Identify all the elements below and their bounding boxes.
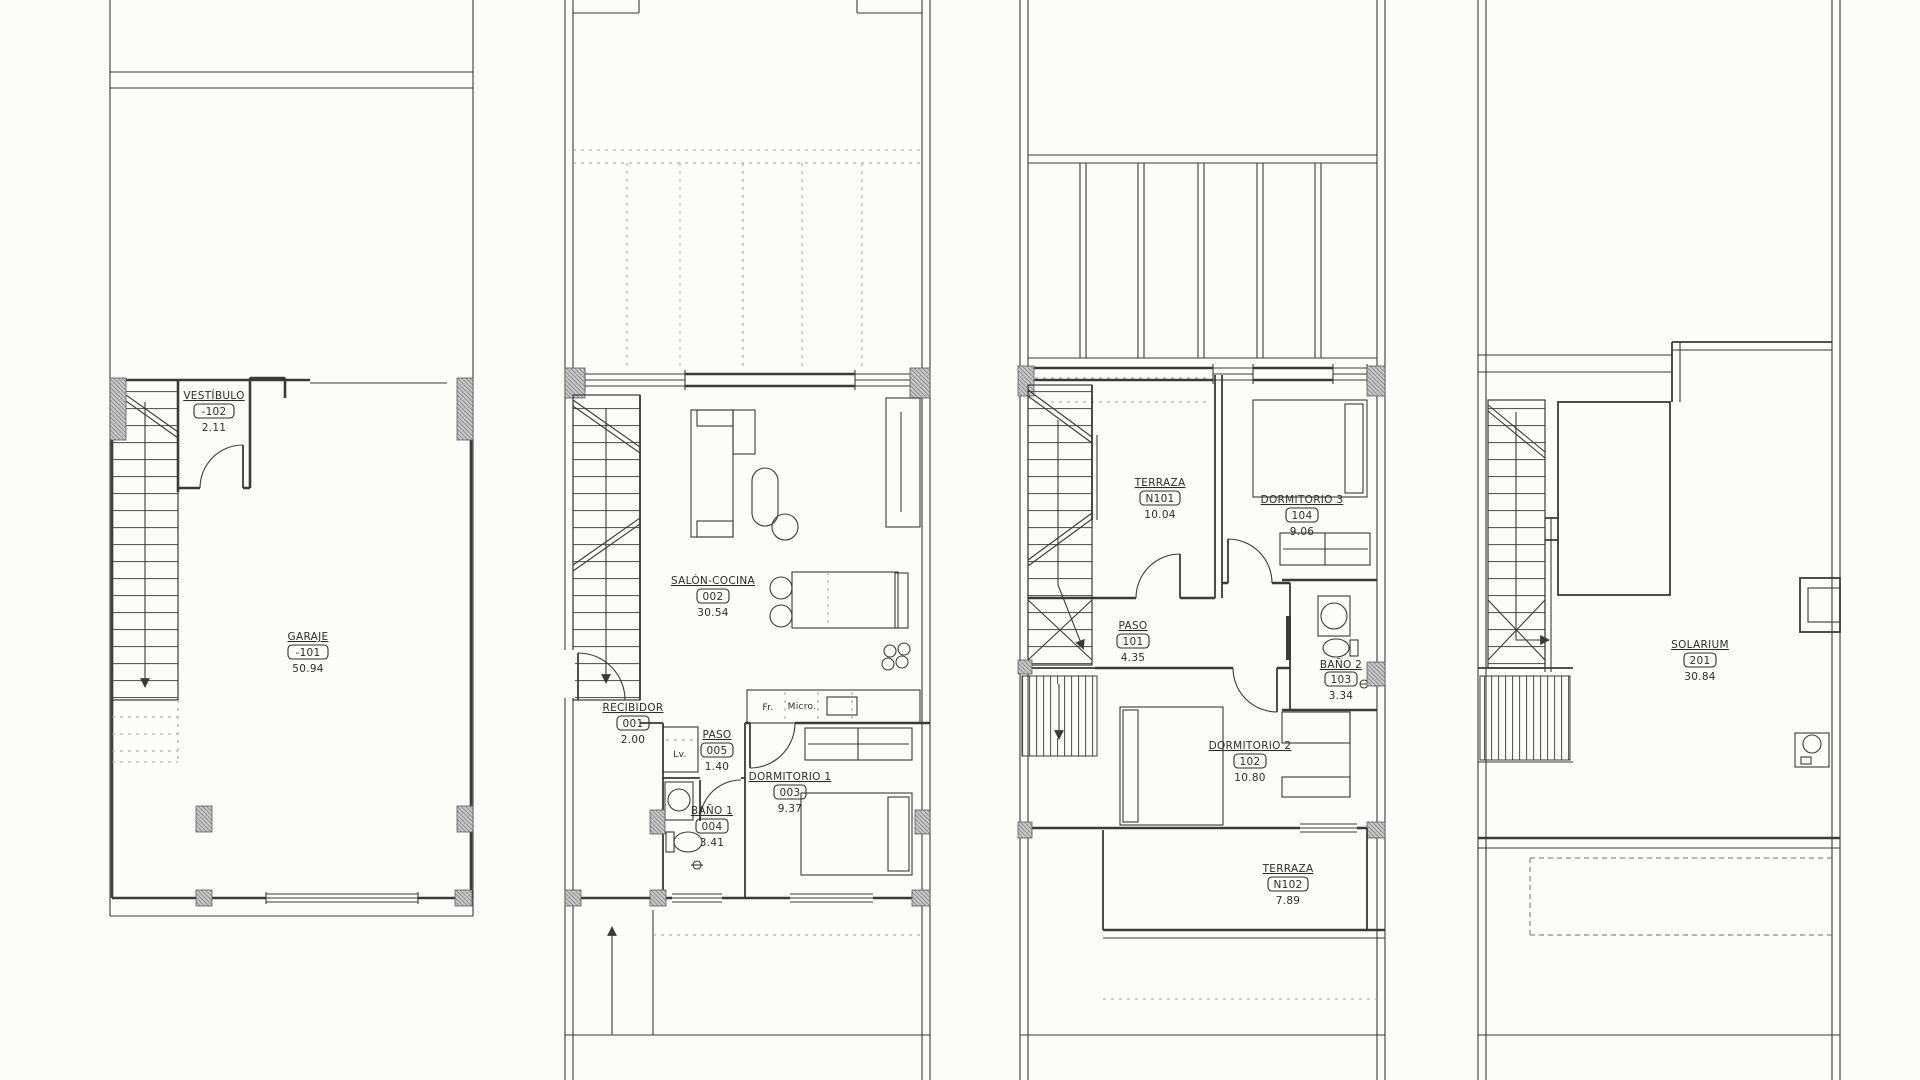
- room-label-recibidor: RECIBIDOR 001 2.00: [602, 702, 663, 746]
- room-label-dormitorio-2: DORMITORIO 2 102 10.80: [1209, 740, 1292, 784]
- room-name: VESTÍBULO: [183, 389, 244, 402]
- room-code: 002: [703, 591, 724, 603]
- bathroom-fixtures: [665, 782, 703, 869]
- room-name: TERRAZA: [1134, 477, 1186, 489]
- room-area: 10.04: [1144, 509, 1176, 521]
- bed: [1120, 707, 1223, 825]
- wardrobe: [805, 728, 912, 760]
- plan-basement-garage: VESTÍBULO -102 2.11 GARAJE -101 50.94: [110, 0, 473, 916]
- room-name: TERRAZA: [1262, 863, 1314, 875]
- room-name: DORMITORIO 2: [1209, 740, 1292, 752]
- room-code: N102: [1273, 879, 1302, 891]
- room-area: 1.40: [705, 761, 730, 773]
- room-name: PASO: [1119, 620, 1148, 632]
- washbasin: [1318, 596, 1350, 636]
- staircase-down: [573, 395, 640, 700]
- room-code: 001: [623, 718, 644, 730]
- room-code: 101: [1123, 636, 1144, 648]
- room-label-paso: PASO 005 1.40: [701, 729, 733, 773]
- washbasin: [665, 782, 693, 820]
- bed: [1253, 400, 1367, 497]
- room-name: GARAJE: [288, 631, 329, 643]
- room-code: 005: [707, 745, 728, 757]
- door-arc: [750, 723, 795, 768]
- door-leaf: [1286, 616, 1291, 660]
- rear-terrace: [1103, 828, 1385, 999]
- toilet: [674, 832, 702, 852]
- room-code: 003: [780, 787, 801, 799]
- room-area: 3.34: [1329, 690, 1354, 702]
- garage-column: [196, 806, 212, 832]
- room-area: 3.41: [700, 837, 725, 849]
- kitchen-counter: [882, 398, 920, 670]
- room-label-solarium: SOLARIUM 201 30.84: [1671, 639, 1729, 683]
- room-area: 9.37: [778, 803, 803, 815]
- window: [1800, 578, 1840, 632]
- bbq-unit: [1795, 733, 1829, 767]
- room-area: 2.11: [202, 422, 227, 434]
- room-code: N101: [1145, 493, 1174, 505]
- room-code: 103: [1331, 674, 1352, 686]
- room-code: -102: [201, 406, 226, 418]
- toilet: [1323, 639, 1349, 657]
- room-label-salon-cocina: SALÓN-COCINA 002 30.54: [671, 574, 756, 619]
- staircase-up: [1488, 400, 1551, 672]
- room-code: 104: [1292, 510, 1313, 522]
- room-area: 7.89: [1276, 895, 1301, 907]
- appliance-label-fridge: Fr.: [762, 703, 773, 713]
- room-code: -101: [295, 647, 320, 659]
- room-area: 4.35: [1121, 652, 1146, 664]
- door-arc: [1136, 554, 1180, 598]
- louver-vent: [1020, 668, 1097, 756]
- room-code: 004: [702, 821, 723, 833]
- room-label-bano-1: BAÑO 1 004 3.41: [691, 804, 733, 849]
- floor-plan-sheet: VESTÍBULO -102 2.11 GARAJE -101 50.94: [0, 0, 1920, 1080]
- room-area: 50.94: [292, 663, 324, 675]
- room-label-terraza-n102: TERRAZA N102 7.89: [1262, 863, 1314, 907]
- sofa: [691, 410, 798, 540]
- door-arc: [200, 445, 243, 488]
- room-label-dormitorio-3: DORMITORIO 3 104 9.06: [1261, 494, 1344, 538]
- room-area: 30.84: [1684, 671, 1716, 683]
- plan-first-floor: TERRAZA N101 10.04 DORMITORIO 3 104 9.06…: [1018, 0, 1385, 1080]
- door-arc: [1233, 668, 1277, 712]
- room-area: 10.80: [1234, 772, 1266, 784]
- room-name: RECIBIDOR: [602, 702, 663, 714]
- louver-vent: [1478, 668, 1573, 762]
- room-name: PASO: [703, 729, 732, 741]
- stair-void: [1558, 402, 1670, 595]
- room-area: 9.06: [1290, 526, 1315, 538]
- room-code: 201: [1690, 655, 1711, 667]
- room-name: BAÑO 1: [691, 804, 733, 817]
- room-name: SALÓN-COCINA: [671, 574, 756, 587]
- room-name: SOLARIUM: [1671, 639, 1729, 651]
- laundry-closet: Lv.: [663, 727, 698, 772]
- toilet-tank: [666, 832, 674, 852]
- plan-ground-floor: Fr. Micro. Lv.: [562, 0, 930, 1080]
- room-label-paso-101: PASO 101 4.35: [1117, 620, 1149, 664]
- room-area: 30.54: [697, 607, 729, 619]
- door-arc: [1228, 539, 1272, 583]
- appliance-label-microwave: Micro.: [788, 702, 817, 712]
- room-label-bano-2: BAÑO 2 103 3.34: [1320, 658, 1362, 702]
- room-label-vestibulo: VESTÍBULO -102 2.11: [183, 389, 244, 434]
- floor-plan-drawing: VESTÍBULO -102 2.11 GARAJE -101 50.94: [0, 0, 1920, 1080]
- bed: [801, 793, 912, 875]
- appliance-label-washer: Lv.: [673, 750, 686, 760]
- dining-table: [770, 572, 908, 628]
- kitchen-appliance-band: Fr. Micro.: [747, 690, 920, 723]
- room-code: 102: [1240, 756, 1261, 768]
- room-area: 2.00: [621, 734, 646, 746]
- room-label-garaje: GARAJE -101 50.94: [288, 631, 329, 675]
- staircase: [1028, 385, 1092, 665]
- room-name: DORMITORIO 3: [1261, 494, 1344, 506]
- room-name: DORMITORIO 1: [749, 771, 832, 783]
- room-name: BAÑO 2: [1320, 658, 1362, 671]
- pergola-slats: [1028, 155, 1377, 358]
- room-label-terraza-n101: TERRAZA N101 10.04: [1134, 477, 1186, 521]
- plan-roof-solarium: SOLARIUM 201 30.84: [1478, 0, 1840, 1080]
